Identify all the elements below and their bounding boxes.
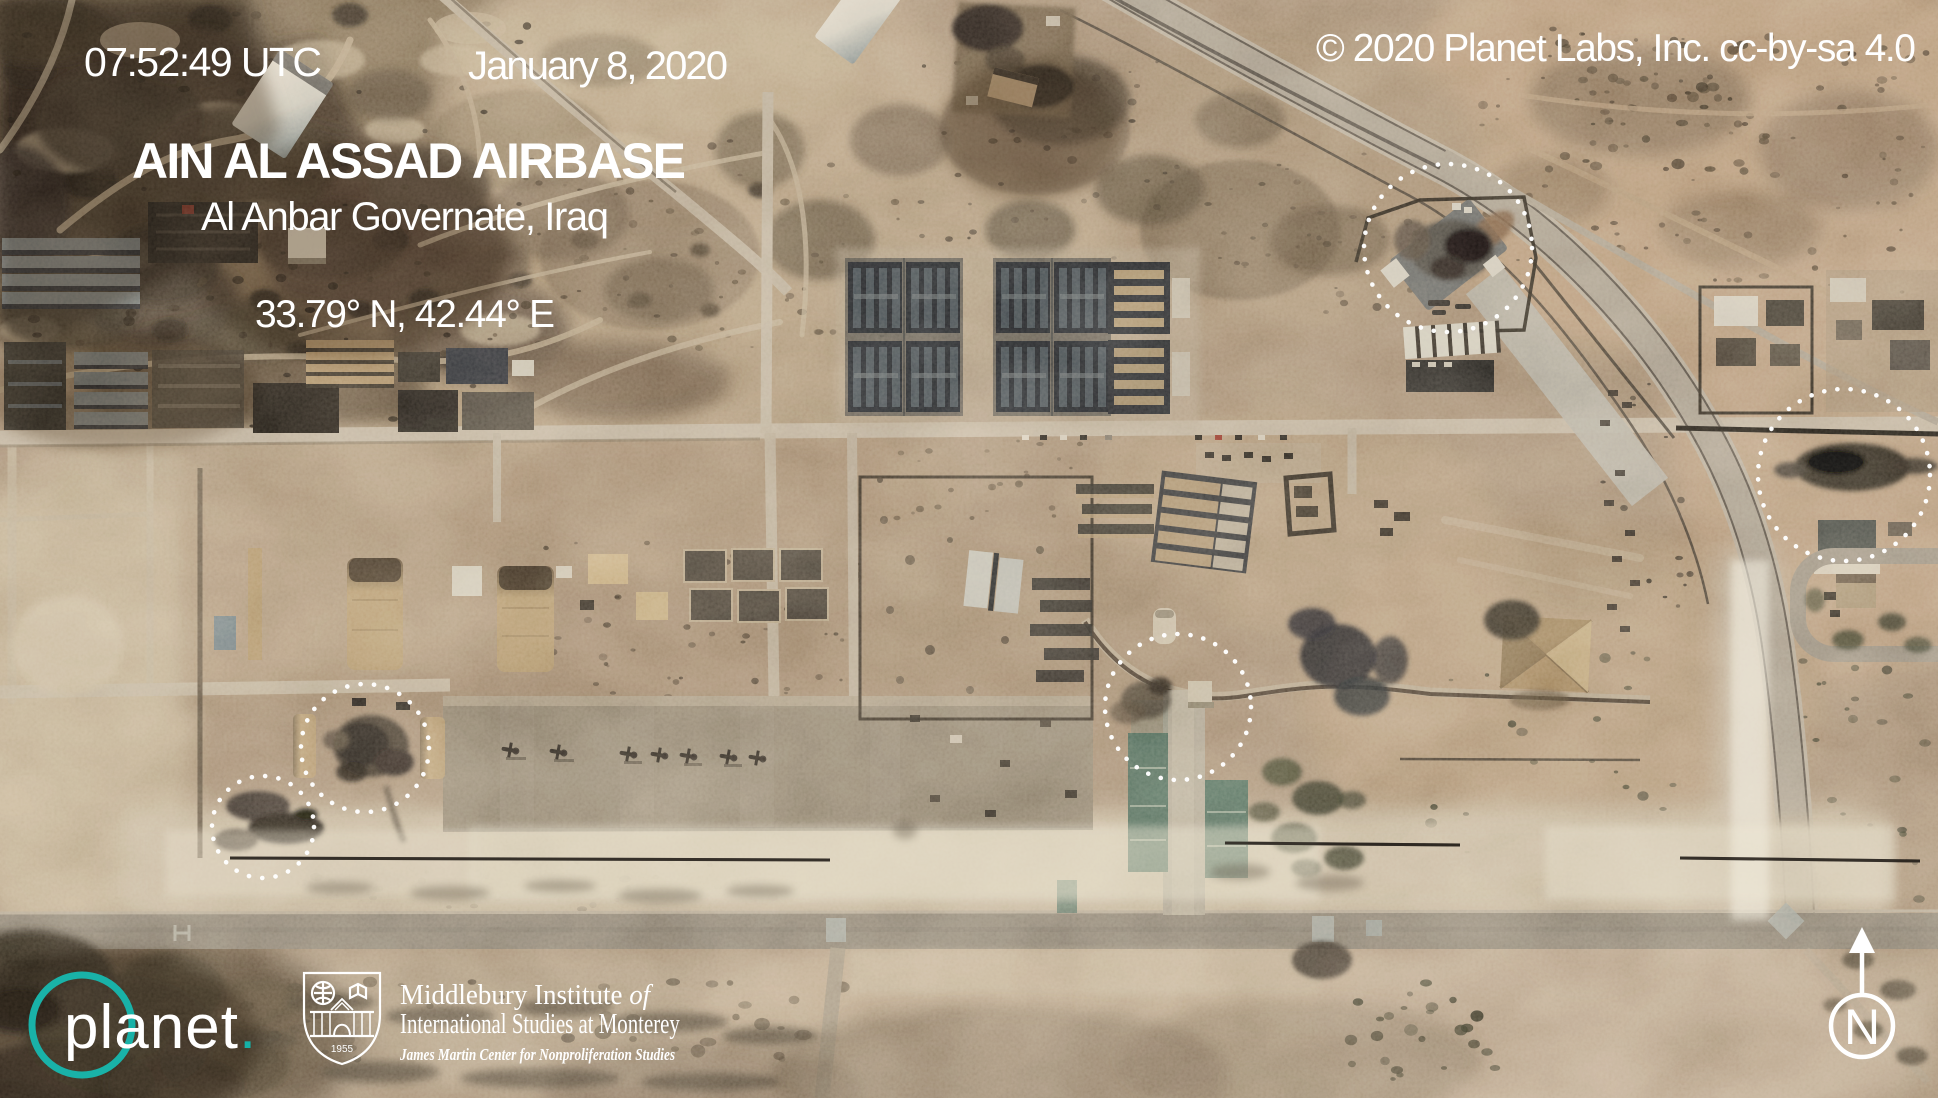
svg-text:Middlebury Institute of: Middlebury Institute of [400, 979, 653, 1011]
svg-text:07:52:49 UTC: 07:52:49 UTC [84, 39, 322, 85]
svg-text:planet.: planet. [64, 993, 257, 1062]
svg-text:International Studies at Monte: International Studies at Monterey [400, 1008, 680, 1040]
svg-text:January 8, 2020: January 8, 2020 [468, 44, 728, 88]
svg-text:Al Anbar Governate, Iraq: Al Anbar Governate, Iraq [201, 195, 609, 239]
svg-text:AIN AL ASSAD AIRBASE: AIN AL ASSAD AIRBASE [132, 133, 686, 189]
svg-text:N: N [1844, 999, 1880, 1055]
svg-text:1955: 1955 [331, 1044, 354, 1055]
svg-text:33.79° N, 42.44° E: 33.79° N, 42.44° E [255, 293, 555, 336]
svg-text:© 2020 Planet Labs, Inc. cc-by: © 2020 Planet Labs, Inc. cc-by-sa 4.0 [1316, 27, 1916, 70]
svg-text:James Martin Center for Nonpro: James Martin Center for Nonproliferation… [399, 1046, 675, 1065]
